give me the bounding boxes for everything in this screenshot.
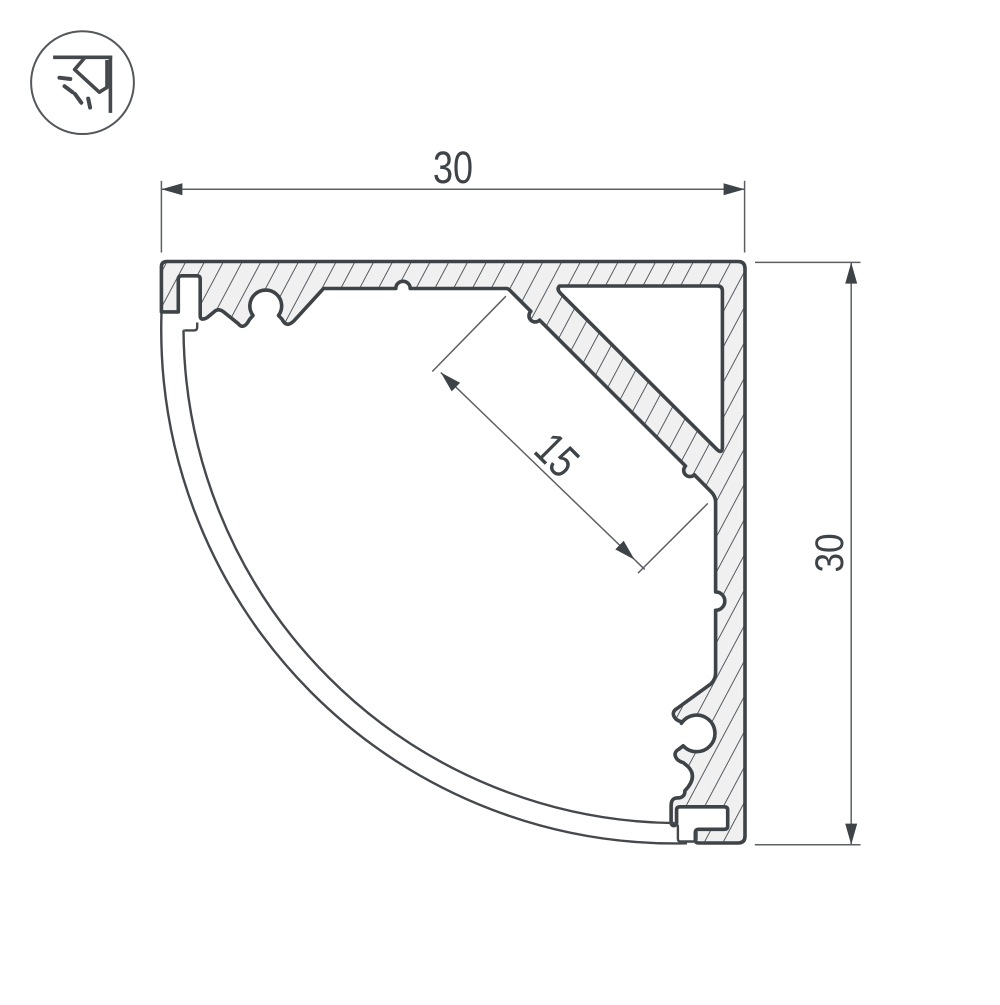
svg-text:30: 30 bbox=[433, 142, 473, 193]
svg-text:30: 30 bbox=[807, 533, 852, 572]
svg-text:15: 15 bbox=[525, 423, 589, 487]
